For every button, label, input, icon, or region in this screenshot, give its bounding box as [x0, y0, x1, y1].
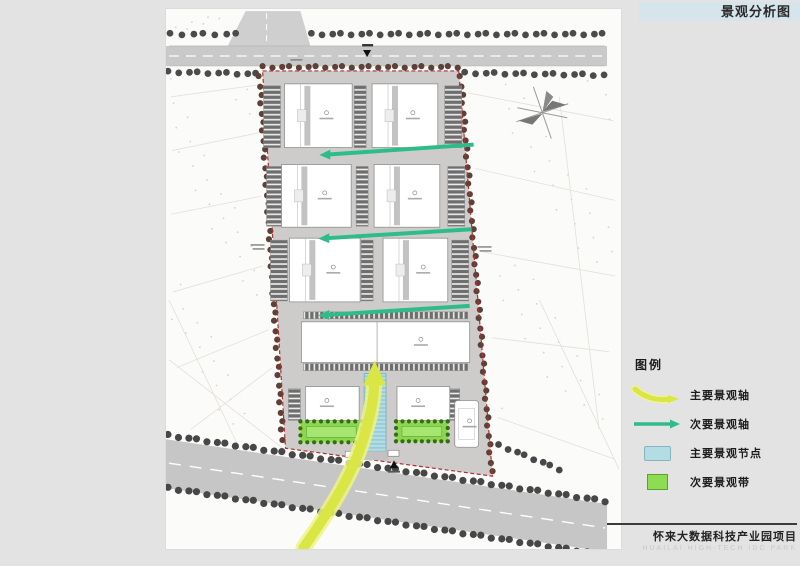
building — [397, 387, 450, 421]
compass-icon — [516, 87, 568, 139]
parking-strip — [445, 86, 462, 148]
legend-heading: 图例 — [635, 356, 796, 373]
parking-strip — [303, 364, 467, 371]
building — [284, 84, 352, 148]
legend-label: 次要景观带 — [690, 474, 750, 490]
secondary-belt-legend-icon — [631, 474, 683, 490]
project-title: 怀来大数据科技产业园项目 — [607, 528, 797, 544]
parking-strip — [361, 240, 373, 301]
legend-item-secondary-axis: 次要景观轴 — [631, 411, 796, 437]
project-subtitle: HUAILAI HIGH-TECH IDC PARK — [607, 545, 797, 552]
parking-strip — [448, 166, 465, 226]
legend-label: 主要景观轴 — [690, 387, 750, 403]
secondary-axis-legend-icon — [631, 417, 683, 431]
site-plan-panel — [165, 8, 622, 550]
main-axis-legend-icon — [631, 383, 683, 407]
landscape-analysis-page: 景观分析图 — [0, 0, 800, 566]
parking-strip — [288, 389, 300, 421]
parking-strip — [452, 240, 469, 301]
building — [289, 238, 360, 302]
building — [383, 238, 448, 302]
building — [455, 400, 479, 447]
building — [372, 84, 438, 148]
building — [374, 165, 440, 228]
site-plan-svg — [166, 9, 621, 549]
building — [305, 387, 359, 421]
project-title-block: 怀来大数据科技产业园项目 HUAILAI HIGH-TECH IDC PARK — [607, 523, 797, 552]
top-road — [166, 11, 607, 66]
parking-strip — [354, 86, 366, 148]
legend-label: 主要景观节点 — [690, 445, 762, 461]
legend-item-secondary-belt: 次要景观带 — [631, 469, 796, 495]
building — [281, 165, 351, 228]
parking-strip — [356, 166, 368, 226]
parking-strip — [267, 166, 284, 226]
building — [301, 322, 469, 363]
legend: 图例 主要景观轴 次要景观轴 主要景观节点 — [631, 356, 796, 498]
main-node-legend-icon — [631, 446, 683, 461]
page-title: 景观分析图 — [639, 2, 800, 21]
legend-label: 次要景观轴 — [690, 416, 750, 432]
legend-item-main-node: 主要景观节点 — [631, 440, 796, 466]
parking-strip — [264, 86, 281, 148]
parking-strip — [271, 240, 288, 301]
legend-item-main-axis: 主要景观轴 — [631, 382, 796, 408]
